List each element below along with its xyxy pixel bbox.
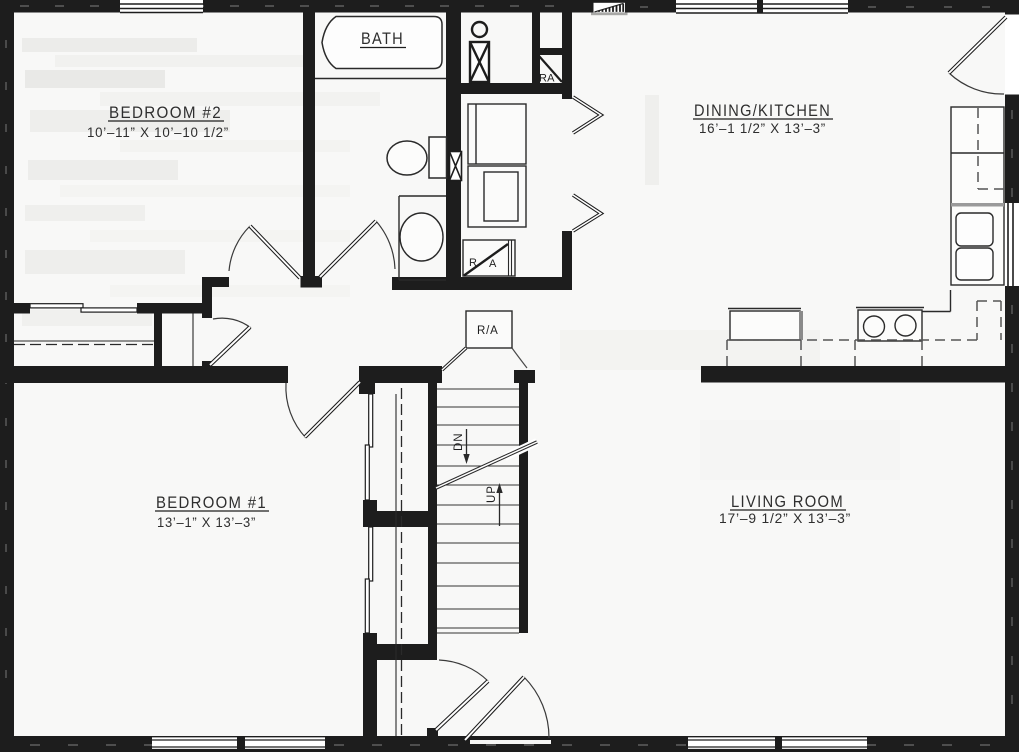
svg-text:16’–1 1/2” X 13’–3”: 16’–1 1/2” X 13’–3” bbox=[699, 120, 826, 136]
svg-text:R/A: R/A bbox=[477, 325, 499, 337]
svg-text:R: R bbox=[469, 257, 477, 269]
svg-text:LIVING ROOM: LIVING ROOM bbox=[731, 492, 844, 511]
svg-text:BEDROOM #2: BEDROOM #2 bbox=[109, 103, 222, 122]
svg-text:BEDROOM #1: BEDROOM #1 bbox=[156, 493, 267, 512]
svg-text:BATH: BATH bbox=[361, 29, 404, 48]
svg-text:17’–9 1/2” X 13’–3”: 17’–9 1/2” X 13’–3” bbox=[719, 510, 851, 526]
svg-text:RA: RA bbox=[539, 73, 555, 85]
svg-text:DN: DN bbox=[453, 432, 465, 451]
svg-text:A: A bbox=[489, 258, 497, 270]
svg-text:10’–11” X 10’–10 1/2”: 10’–11” X 10’–10 1/2” bbox=[87, 124, 229, 140]
svg-text:13’–1” X 13’–3”: 13’–1” X 13’–3” bbox=[157, 514, 256, 530]
svg-text:DINING/KITCHEN: DINING/KITCHEN bbox=[694, 101, 831, 120]
svg-text:UP: UP bbox=[486, 485, 498, 503]
